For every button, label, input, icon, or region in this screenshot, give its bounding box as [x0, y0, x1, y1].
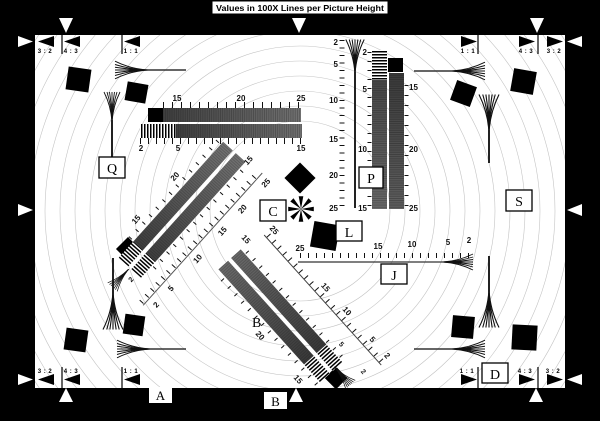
scale-label: 15 [358, 204, 367, 213]
black-square [511, 324, 537, 350]
chart-svg: 15 20 25 2 5 15 2 5 10 15 20 25 [0, 0, 600, 421]
aspect-label: 3 : 2 [38, 49, 53, 55]
scale-label: 5 [446, 238, 451, 247]
aspect-label: 3 : 2 [38, 369, 53, 375]
black-square [388, 58, 403, 72]
label-b: B [271, 394, 280, 409]
black-square [451, 315, 475, 339]
scale-label: 10 [358, 145, 367, 154]
aspect-label: 4 : 3 [518, 369, 533, 375]
aspect-label: 1 : 1 [124, 49, 139, 55]
scale-label: 20 [237, 94, 246, 103]
scale-label: 10 [329, 96, 338, 105]
iso12233-test-chart: 15 20 25 2 5 15 2 5 10 15 20 25 [0, 0, 600, 421]
aspect-label: 1 : 1 [460, 369, 475, 375]
scale-label: 10 [408, 240, 417, 249]
scale-label: 15 [374, 242, 383, 251]
label-c: C [268, 205, 277, 220]
scale-label: 2 [334, 38, 339, 47]
scale-label: 20 [329, 171, 338, 180]
label-a: A [156, 388, 166, 403]
siemens-star [288, 196, 314, 222]
aspect-label: 4 : 3 [64, 49, 79, 55]
black-square [148, 108, 163, 122]
black-square [510, 68, 537, 95]
label-p: P [367, 172, 375, 187]
black-square [123, 314, 146, 337]
label-l: L [345, 226, 354, 241]
scale-label: 20 [409, 145, 418, 154]
aspect-label: 4 : 3 [519, 49, 534, 55]
label-s: S [515, 195, 523, 210]
scale-label: 25 [409, 204, 418, 213]
aspect-label: 3 : 2 [547, 49, 562, 55]
aspect-label: 1 : 1 [124, 369, 139, 375]
aspect-label: 1 : 1 [461, 49, 476, 55]
title-plate: Values in 100X Lines per Picture Height [212, 1, 388, 14]
label-d: D [490, 368, 500, 383]
scale-label: 25 [329, 204, 338, 213]
scale-label: 25 [297, 94, 306, 103]
scale-label: 2 [467, 236, 472, 245]
scale-label: 5 [176, 144, 181, 153]
scale-label: 15 [409, 83, 418, 92]
aspect-label: 3 : 2 [546, 369, 561, 375]
scale-label: 5 [334, 60, 339, 69]
chart-area [35, 35, 565, 388]
black-square [125, 81, 149, 103]
aspect-label: 4 : 3 [64, 369, 79, 375]
scale-label: 15 [297, 144, 306, 153]
black-square [66, 67, 92, 93]
label-q: Q [107, 162, 117, 177]
scale-label: 15 [173, 94, 182, 103]
scale-label: 25 [296, 244, 305, 253]
scale-label: 15 [329, 135, 338, 144]
scale-label: 2 [139, 144, 144, 153]
wedge-b-letter: B [252, 316, 261, 331]
chart-title: Values in 100X Lines per Picture Height [216, 3, 384, 13]
scale-label: 2 [363, 48, 368, 57]
label-j: J [391, 269, 397, 284]
scale-label: 5 [363, 85, 368, 94]
black-square [64, 328, 89, 353]
